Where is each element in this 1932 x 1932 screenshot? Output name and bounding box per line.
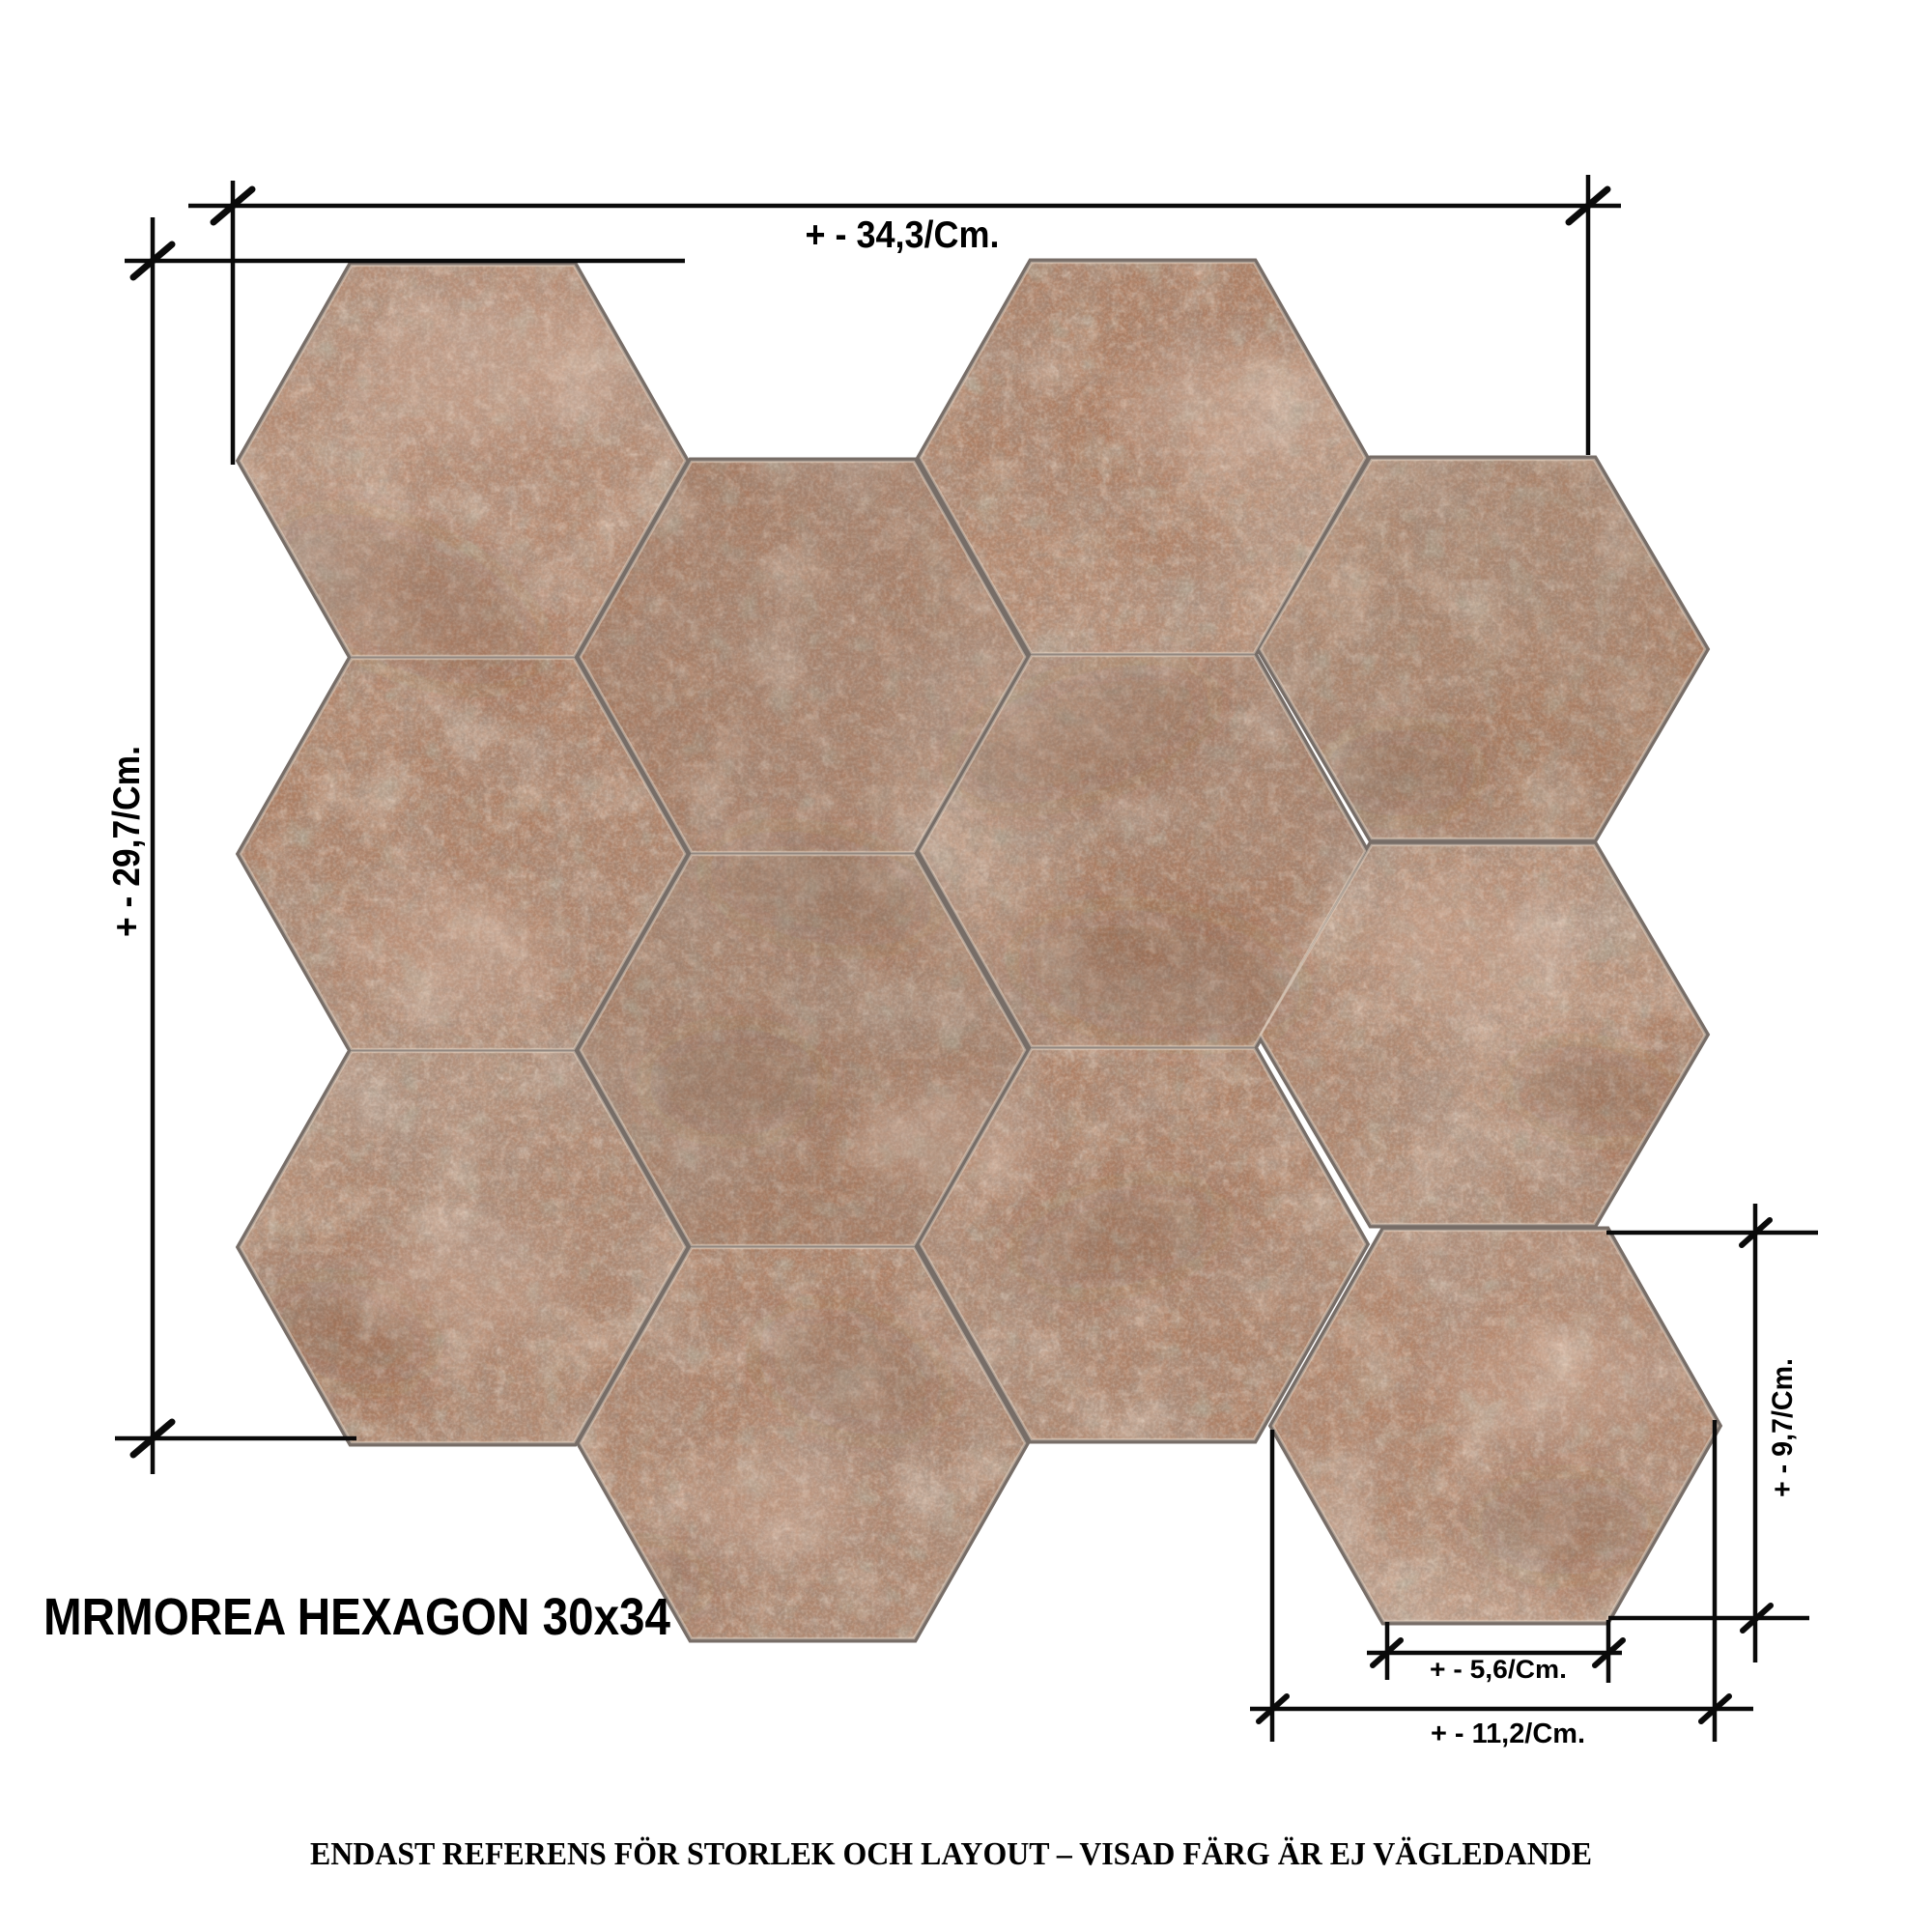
svg-text:MRMOREA HEXAGON 30x34: MRMOREA HEXAGON 30x34: [43, 1588, 670, 1646]
svg-text:+ - 29,7/Cm.: + - 29,7/Cm.: [106, 746, 148, 937]
svg-text:ENDAST REFERENS FÖR STORLEK OC: ENDAST REFERENS FÖR STORLEK OCH LAYOUT –…: [310, 1836, 1592, 1872]
svg-text:+ - 5,6/Cm.: + - 5,6/Cm.: [1430, 1655, 1567, 1684]
svg-text:+ - 11,2/Cm.: + - 11,2/Cm.: [1431, 1719, 1585, 1749]
svg-text:+ - 9,7/Cm.: + - 9,7/Cm.: [1767, 1358, 1799, 1497]
svg-text:+ - 34,3/Cm.: + - 34,3/Cm.: [806, 214, 1000, 256]
